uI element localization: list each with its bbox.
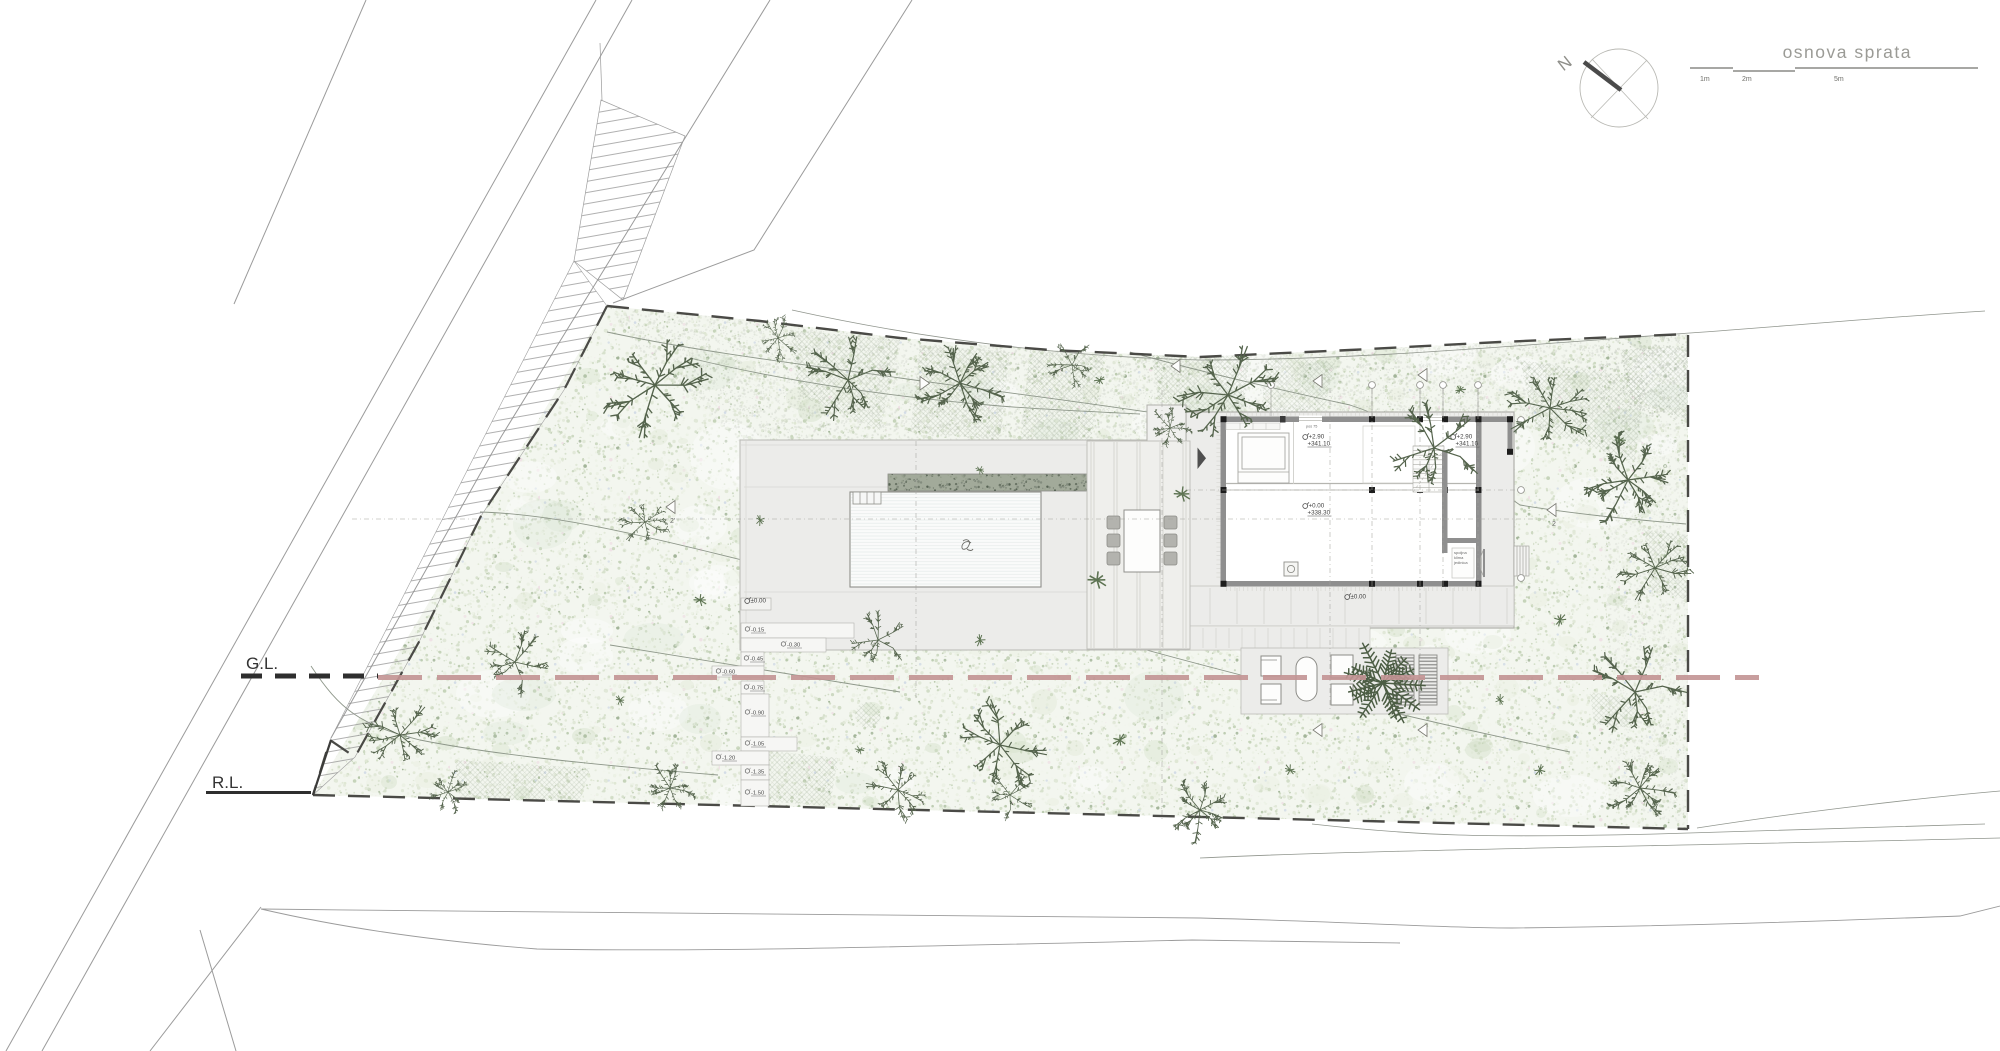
svg-text:-1.20: -1.20 (722, 756, 735, 762)
svg-text:-0.60: -0.60 (722, 670, 735, 676)
svg-text:-1.05: -1.05 (751, 742, 764, 748)
svg-text:2m: 2m (1742, 76, 1752, 83)
svg-text:-1.50: -1.50 (751, 791, 764, 797)
svg-text:-0.30: -0.30 (787, 643, 800, 649)
svg-text:-0.45: -0.45 (750, 657, 763, 663)
svg-text:N: N (1554, 52, 1575, 75)
svg-text:-0.90: -0.90 (751, 711, 764, 717)
svg-text:2': 2' (670, 518, 675, 525)
svg-text:+2.90: +2.90 (1309, 434, 1325, 441)
svg-text:osnova sprata: osnova sprata (1783, 42, 1912, 62)
svg-text:-0.75: -0.75 (750, 686, 763, 692)
svg-text:2: 2 (1552, 521, 1556, 528)
svg-text:-1.35: -1.35 (751, 770, 764, 776)
svg-text:pos 75: pos 75 (1306, 425, 1317, 429)
svg-text:±0.00: ±0.00 (1351, 594, 1367, 601)
svg-text:±0.00: ±0.00 (751, 598, 767, 605)
svg-text:-0.15: -0.15 (751, 628, 764, 634)
svg-text:R.L.: R.L. (212, 773, 243, 792)
svg-text:+341.10: +341.10 (1456, 441, 1479, 448)
svg-text:+0.00: +0.00 (1309, 503, 1325, 510)
svg-text:+338.30: +338.30 (1308, 510, 1331, 517)
svg-text:+341.10: +341.10 (1308, 441, 1331, 448)
svg-text:G.L.: G.L. (246, 654, 278, 673)
svg-text:5m: 5m (1834, 76, 1844, 83)
svg-text:1m: 1m (1700, 76, 1710, 83)
svg-text:+2.90: +2.90 (1457, 434, 1473, 441)
svg-text:jedinica: jedinica (1453, 560, 1468, 565)
